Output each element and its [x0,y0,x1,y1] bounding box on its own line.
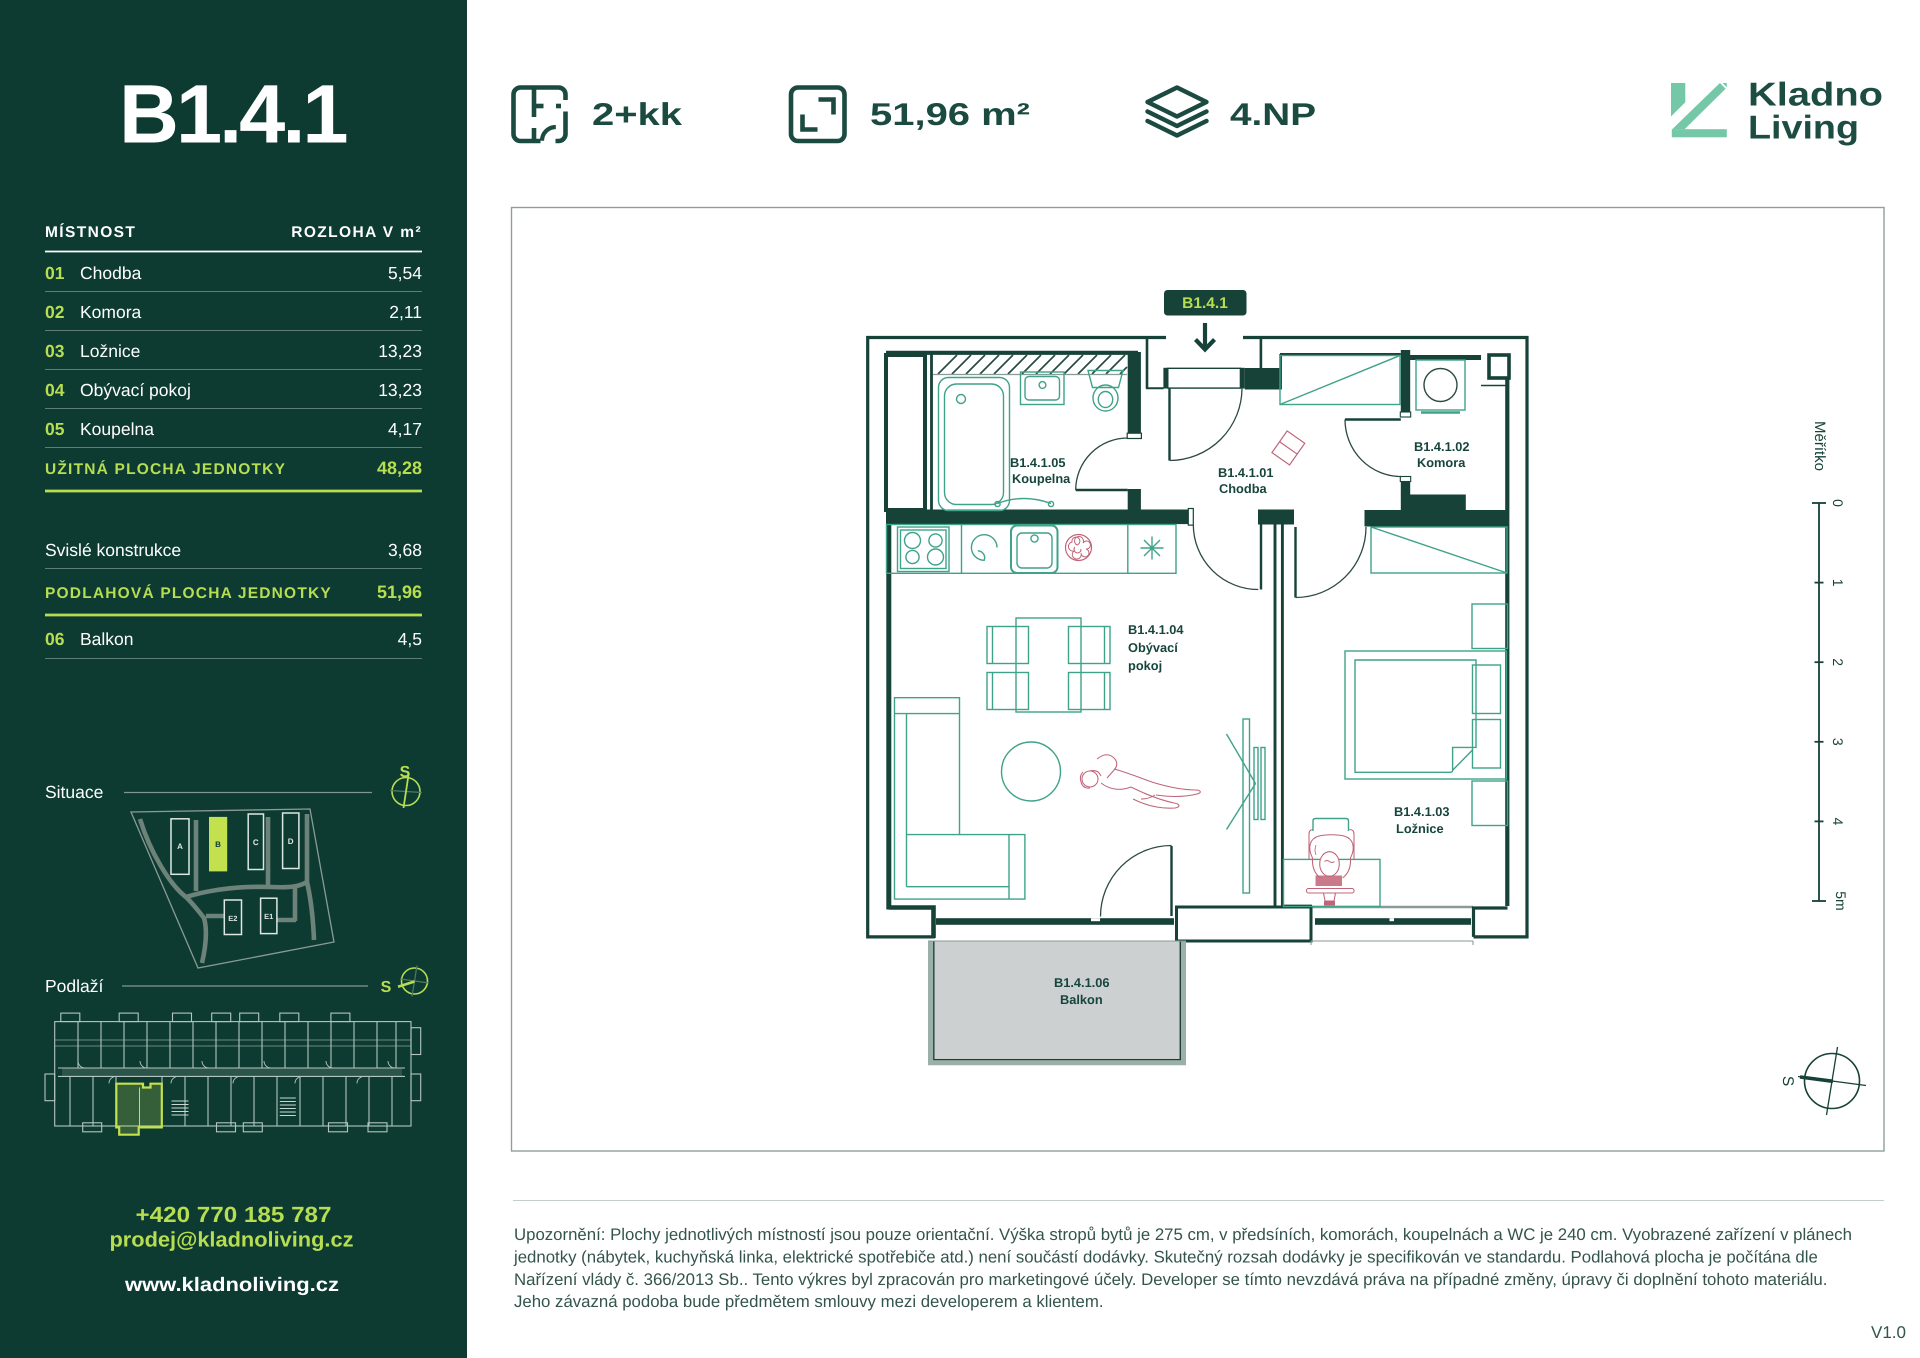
svg-text:2+kk: 2+kk [592,96,683,132]
svg-text:B: B [215,840,221,849]
svg-text:B1.4.1.04: B1.4.1.04 [1128,622,1184,637]
svg-text:4,17: 4,17 [388,419,422,439]
svg-text:Obývací pokoj: Obývací pokoj [80,380,191,400]
svg-text:Ložnice: Ložnice [80,341,140,361]
svg-text:51,96 m²: 51,96 m² [870,96,1030,132]
svg-text:05: 05 [45,419,65,439]
svg-text:Koupelna: Koupelna [80,419,154,439]
svg-text:Living: Living [1748,109,1859,146]
svg-text:Jeho závazná podoba bude předm: Jeho závazná podoba bude předmětem smlou… [514,1292,1104,1311]
svg-text:Upozornění: Plochy jednotlivýc: Upozornění: Plochy jednotlivých místnost… [514,1225,1852,1244]
svg-text:B1.4.1.01: B1.4.1.01 [1218,465,1274,480]
svg-text:MÍSTNOST: MÍSTNOST [45,223,136,241]
svg-text:02: 02 [45,302,65,322]
svg-text:B1.4.1.05: B1.4.1.05 [1010,455,1066,470]
svg-text:B1.4.1.03: B1.4.1.03 [1394,804,1450,819]
svg-text:pokoj: pokoj [1128,658,1162,673]
svg-text:Obývací: Obývací [1128,640,1178,655]
svg-text:48,28: 48,28 [377,458,422,478]
svg-text:13,23: 13,23 [378,380,422,400]
svg-text:Koupelna: Koupelna [1012,471,1071,486]
svg-text:Situace: Situace [45,782,103,802]
svg-text:Balkon: Balkon [1060,992,1103,1007]
svg-text:E2: E2 [228,914,237,923]
svg-text:5m: 5m [1833,891,1849,910]
svg-text:Ložnice: Ložnice [1396,821,1444,836]
svg-text:B1.4.1: B1.4.1 [1182,295,1228,312]
svg-text:Měřítko: Měřítko [1811,421,1828,471]
svg-text:C: C [253,838,259,847]
svg-text:13,23: 13,23 [378,341,422,361]
svg-text:0: 0 [1830,499,1846,507]
svg-text:03: 03 [45,341,65,361]
svg-text:2: 2 [1830,658,1846,666]
svg-text:Komora: Komora [1417,455,1466,470]
svg-text:B1.4.1.06: B1.4.1.06 [1054,975,1110,990]
svg-text:UŽITNÁ PLOCHA JEDNOTKY: UŽITNÁ PLOCHA JEDNOTKY [45,460,286,478]
svg-text:ROZLOHA V m²: ROZLOHA V m² [291,224,422,241]
svg-text:Nařízení vlády č. 366/2013 Sb.: Nařízení vlády č. 366/2013 Sb.. Tento vý… [514,1270,1827,1289]
svg-text:jednotky (nábytek, kuchyňská l: jednotky (nábytek, kuchyňská linka, elek… [513,1247,1818,1266]
svg-text:Podlaží: Podlaží [45,976,104,996]
svg-text:4.NP: 4.NP [1230,96,1316,132]
svg-text:Chodba: Chodba [80,263,142,283]
svg-text:S: S [1779,1076,1796,1086]
svg-text:Svislé konstrukce: Svislé konstrukce [45,540,181,560]
svg-text:A: A [177,842,183,851]
svg-text:B1.4.1: B1.4.1 [119,68,346,161]
svg-text:01: 01 [45,263,65,283]
svg-text:Balkon: Balkon [80,629,134,649]
svg-text:E1: E1 [264,912,273,921]
svg-text:B1.4.1.02: B1.4.1.02 [1414,439,1470,454]
svg-text:Komora: Komora [80,302,142,322]
svg-text:04: 04 [45,380,65,400]
svg-text:4: 4 [1830,818,1846,826]
svg-text:06: 06 [45,629,65,649]
svg-text:prodej@kladnoliving.cz: prodej@kladnoliving.cz [110,1229,354,1252]
svg-text:D: D [288,837,294,846]
svg-text:51,96: 51,96 [377,582,422,602]
svg-text:2,11: 2,11 [389,302,422,322]
svg-text:5,54: 5,54 [388,263,422,283]
svg-text:3,68: 3,68 [388,540,422,560]
svg-text:4,5: 4,5 [398,629,422,649]
svg-text:1: 1 [1830,579,1846,587]
svg-text:www.kladnoliving.cz: www.kladnoliving.cz [124,1274,339,1296]
svg-text:Chodba: Chodba [1219,481,1268,496]
svg-text:+420 770 185 787: +420 770 185 787 [136,1202,332,1227]
svg-text:V1.0: V1.0 [1871,1323,1906,1342]
svg-text:PODLAHOVÁ PLOCHA JEDNOTKY: PODLAHOVÁ PLOCHA JEDNOTKY [45,584,332,602]
svg-text:Kladno: Kladno [1748,76,1883,113]
svg-text:S: S [381,979,392,996]
svg-text:3: 3 [1830,738,1846,746]
